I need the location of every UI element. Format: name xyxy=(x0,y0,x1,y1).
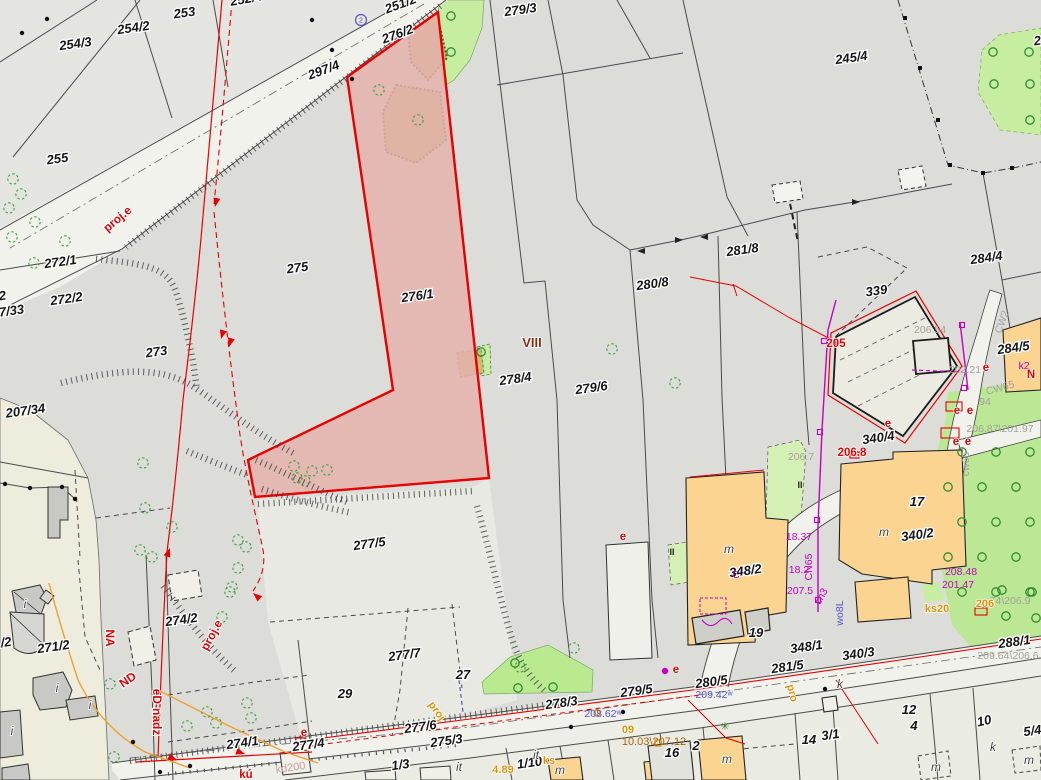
map-label: e xyxy=(885,418,891,430)
boundary-marker-icon xyxy=(1010,166,1014,170)
map-label: 206.54 xyxy=(914,324,946,336)
survey-point-icon xyxy=(131,740,135,744)
boundary-marker-icon xyxy=(903,16,907,20)
map-label: 209.64\206.6 xyxy=(977,650,1038,662)
map-label: m xyxy=(931,760,941,774)
survey-point-icon xyxy=(188,764,192,768)
map-label: 206.7 xyxy=(788,451,814,463)
map-label: N xyxy=(1027,369,1035,381)
map-label: 206.8 xyxy=(838,447,867,459)
survey-point-icon xyxy=(350,77,354,81)
survey-point-icon xyxy=(28,486,32,490)
map-label: 5/4 xyxy=(1022,722,1041,739)
map-label: m xyxy=(1024,753,1034,767)
boundary-marker-icon xyxy=(981,171,985,175)
map-label: II xyxy=(797,480,802,490)
map-label: 207.5 xyxy=(787,585,813,597)
map-label: 4 xyxy=(909,718,918,733)
circled-2-marker-text: 2 xyxy=(359,18,363,25)
map-label: e xyxy=(953,436,959,448)
map-label: e xyxy=(673,664,679,676)
map-label: VIII xyxy=(522,335,542,350)
map-label: 2 xyxy=(691,738,700,753)
map-label: m xyxy=(879,525,889,539)
map-label: e xyxy=(954,405,960,417)
survey-point-icon xyxy=(20,31,24,35)
survey-point-icon xyxy=(45,17,49,21)
survey-point-icon xyxy=(158,770,162,774)
map-label: 27 xyxy=(455,667,471,682)
map-label: e xyxy=(983,362,989,374)
map-label: 10.03\207.12 xyxy=(622,736,686,748)
map-label: wo8L xyxy=(834,600,846,626)
survey-point-icon xyxy=(3,482,7,486)
map-label: 19 xyxy=(749,625,764,640)
map-viewport[interactable]: 2✳ 253254/2254/3255252/4251/2297/4276/22… xyxy=(0,0,1041,780)
map-label: 09 xyxy=(622,724,634,736)
map-label: NA xyxy=(103,629,117,647)
map-label: C xyxy=(732,569,740,581)
map-label: it xyxy=(533,748,540,762)
map-label: 205 xyxy=(826,338,846,350)
map-label: 208.62ʷ xyxy=(584,708,622,720)
map-label: 206 xyxy=(976,598,994,610)
survey-point-icon xyxy=(823,687,827,691)
map-label: 17 xyxy=(910,494,925,509)
survey-point-icon xyxy=(569,725,573,729)
survey-point-icon xyxy=(60,485,64,489)
map-label: e xyxy=(967,405,973,417)
map-label: eD-nadz xyxy=(150,689,164,736)
map-label: i xyxy=(11,724,14,738)
map-label: 201.47 xyxy=(942,579,974,591)
survey-point-icon xyxy=(310,18,314,22)
map-label: 4.89 xyxy=(492,764,513,776)
map-label: 202.21 xyxy=(949,364,981,376)
map-label: 208.48 xyxy=(945,566,977,578)
map-label: II xyxy=(669,547,674,557)
survey-point-icon xyxy=(330,48,334,52)
boundary-marker-icon xyxy=(918,66,922,70)
map-label: e xyxy=(301,727,307,739)
map-label: 1/3 xyxy=(390,756,411,773)
boundary-marker-icon xyxy=(936,118,940,122)
utility-node-icon xyxy=(662,668,668,674)
map-label: CN65 xyxy=(803,553,815,580)
map-label: 3/1 xyxy=(820,726,840,743)
map-label: 94 xyxy=(979,396,991,408)
map-label: i xyxy=(56,681,59,695)
map-label: i xyxy=(89,698,92,712)
map-label: e xyxy=(965,436,971,448)
map-label: 12 xyxy=(902,702,917,717)
map-label: cw65 xyxy=(960,452,972,477)
map-label: 206.87\201.97 xyxy=(966,423,1033,435)
landmark-star-icon: ✳ xyxy=(720,720,729,733)
map-label: 339 xyxy=(865,282,889,300)
map-label: e xyxy=(620,531,626,543)
map-label: ks20 xyxy=(925,603,949,615)
map-label: m xyxy=(724,542,734,556)
map-label: 14 xyxy=(802,732,817,747)
survey-point-icon xyxy=(73,497,77,501)
map-label: 209.42ʷ xyxy=(695,689,733,701)
map-label: k xyxy=(837,677,844,691)
map-label: it xyxy=(456,760,463,774)
map-label: 74\206.9 xyxy=(990,595,1031,607)
cadastral-map-canvas[interactable]: 2✳ 253254/2254/3255252/4251/2297/4276/22… xyxy=(0,0,1041,780)
map-label: i xyxy=(24,597,27,611)
map-label: m xyxy=(722,752,732,766)
map-label: k xyxy=(990,740,997,754)
map-label: 18.37 xyxy=(786,531,812,543)
map-label: ks xyxy=(543,755,555,767)
map-label: 29 xyxy=(337,686,353,701)
map-label: kú xyxy=(239,769,252,780)
boundary-marker-icon xyxy=(948,163,952,167)
map-label: m xyxy=(555,763,565,777)
